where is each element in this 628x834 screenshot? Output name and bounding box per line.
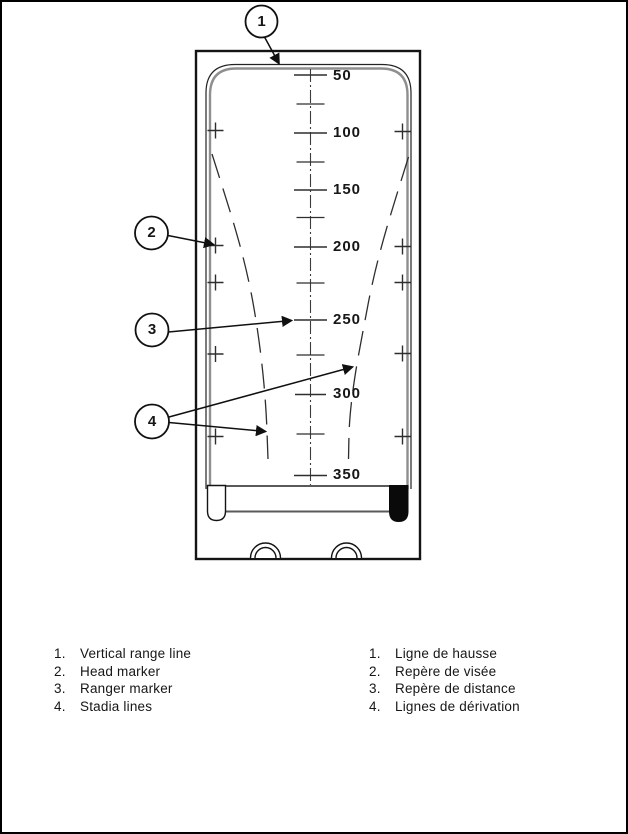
legend-item-label: Lignes de dérivation bbox=[395, 698, 520, 716]
sight-housing-outline bbox=[196, 51, 420, 559]
legend-item-number: 1. bbox=[54, 645, 80, 663]
reticle-diagram bbox=[2, 2, 628, 627]
callout-number-2: 2 bbox=[147, 224, 155, 241]
roller-left-cap bbox=[208, 486, 226, 521]
legend-item-number: 4. bbox=[54, 698, 80, 716]
range-label-200: 200 bbox=[333, 238, 361, 255]
legend-french: 1. Ligne de hausse 2. Repère de visée 3.… bbox=[369, 645, 520, 715]
legend-item-number: 2. bbox=[369, 663, 395, 681]
document-page: 50 100 150 200 250 300 350 1 2 3 4 1. Ve… bbox=[0, 0, 628, 834]
range-label-150: 150 bbox=[333, 181, 361, 198]
legend-item-fr-4: 4. Lignes de dérivation bbox=[369, 698, 520, 716]
legend-item-en-3: 3. Ranger marker bbox=[54, 680, 191, 698]
range-label-100: 100 bbox=[333, 124, 361, 141]
callout-number-1: 1 bbox=[257, 12, 265, 29]
legend-item-label: Vertical range line bbox=[80, 645, 191, 663]
range-label-50: 50 bbox=[333, 67, 352, 84]
legend-item-label: Ranger marker bbox=[80, 680, 173, 698]
legend-item-fr-1: 1. Ligne de hausse bbox=[369, 645, 520, 663]
roller-right-cap bbox=[390, 486, 409, 522]
legend-item-number: 3. bbox=[54, 680, 80, 698]
legend-item-number: 2. bbox=[54, 663, 80, 681]
legend-item-en-4: 4. Stadia lines bbox=[54, 698, 191, 716]
legend-item-en-1: 1. Vertical range line bbox=[54, 645, 191, 663]
legend-item-label: Head marker bbox=[80, 663, 160, 681]
range-label-250: 250 bbox=[333, 311, 361, 328]
legend-item-label: Stadia lines bbox=[80, 698, 152, 716]
legend-item-number: 1. bbox=[369, 645, 395, 663]
legend-item-label: Repère de distance bbox=[395, 680, 516, 698]
legend-item-number: 3. bbox=[369, 680, 395, 698]
legend-item-label: Repère de visée bbox=[395, 663, 496, 681]
legend-item-number: 4. bbox=[369, 698, 395, 716]
range-label-350: 350 bbox=[333, 466, 361, 483]
legend-item-fr-2: 2. Repère de visée bbox=[369, 663, 520, 681]
legend-english: 1. Vertical range line 2. Head marker 3.… bbox=[54, 645, 191, 715]
legend-item-label: Ligne de hausse bbox=[395, 645, 497, 663]
callout-number-3: 3 bbox=[148, 321, 156, 338]
legend-item-en-2: 2. Head marker bbox=[54, 663, 191, 681]
range-label-300: 300 bbox=[333, 385, 361, 402]
callout-number-4: 4 bbox=[148, 412, 156, 429]
legend-item-fr-3: 3. Repère de distance bbox=[369, 680, 520, 698]
